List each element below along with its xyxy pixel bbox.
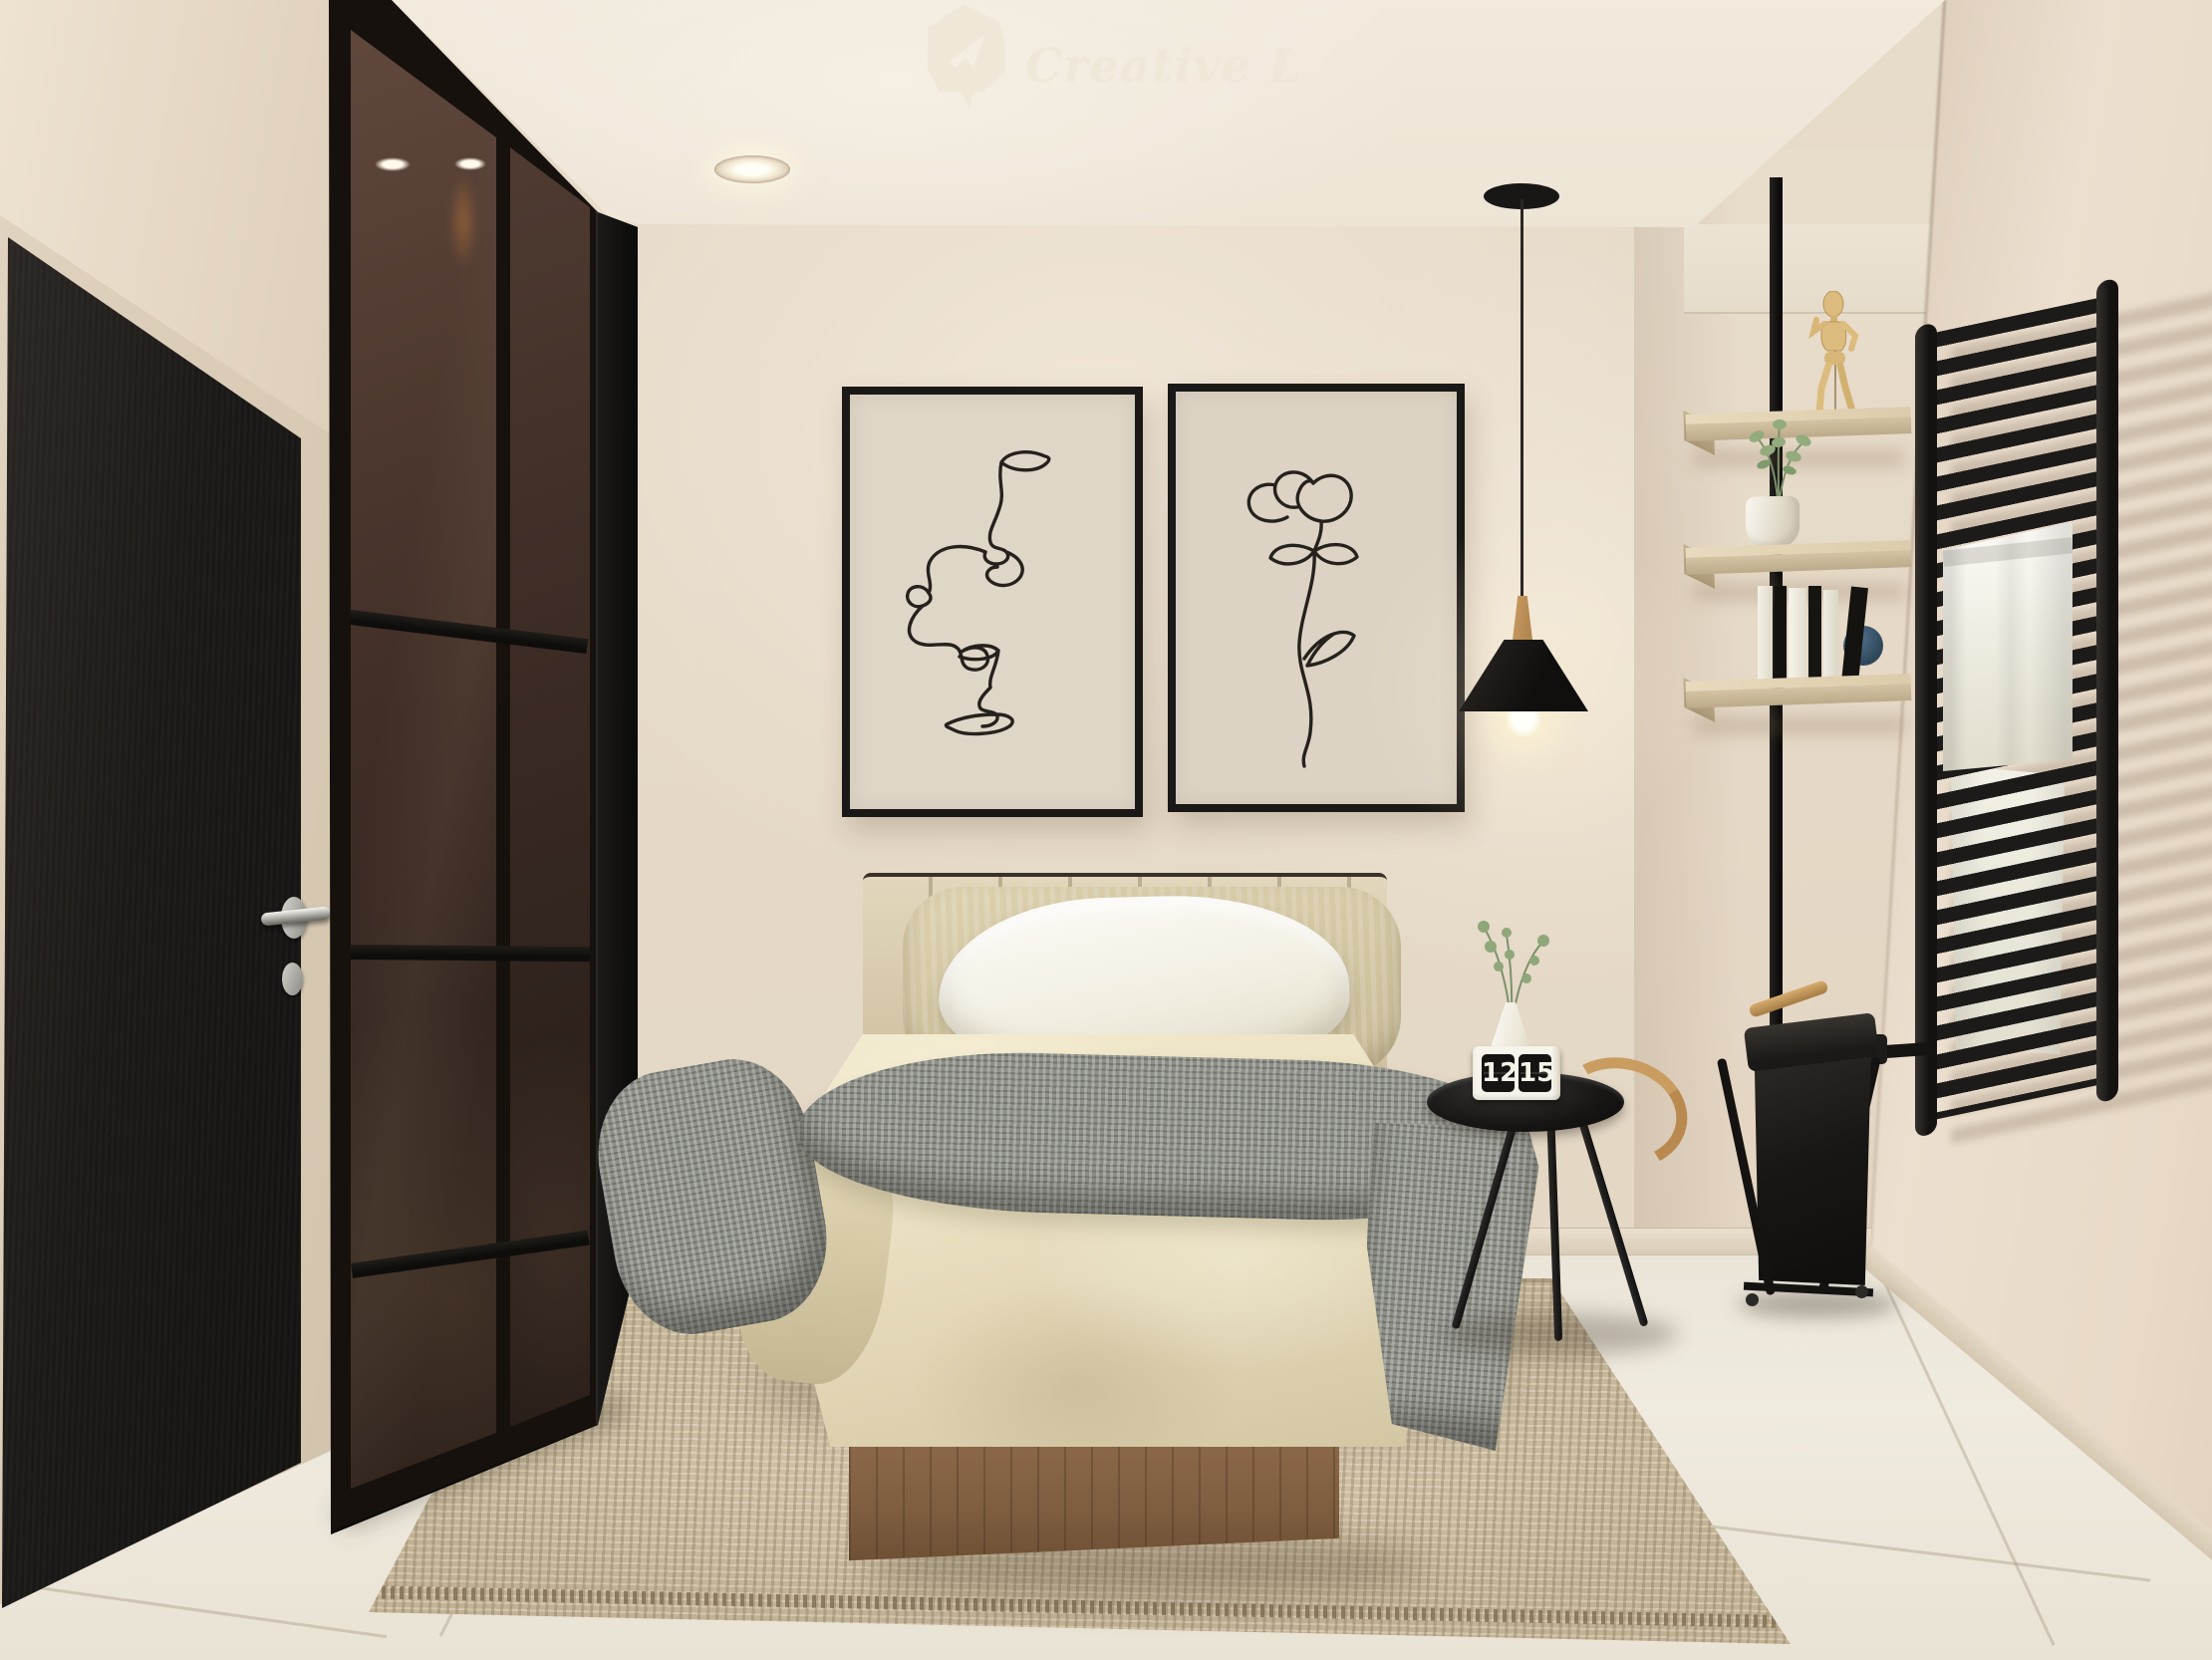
book-spine xyxy=(1789,588,1806,682)
flip-clock: 12 15 xyxy=(1473,1046,1560,1100)
spotlight-reflection xyxy=(454,157,486,170)
wooden-mannequin xyxy=(1792,291,1875,416)
potted-plant xyxy=(1730,409,1825,504)
hamper-shadow xyxy=(1738,1291,1897,1317)
radiator-tube xyxy=(1915,322,1937,1138)
glass-wardrobe xyxy=(329,0,642,1560)
faces-line-art xyxy=(850,395,1135,809)
door-lock-cylinder xyxy=(282,963,303,995)
plant-pot xyxy=(1746,496,1799,548)
book-spine xyxy=(1758,586,1773,682)
tile-grout-line xyxy=(1686,1522,2151,1581)
paper-plane-badge-icon xyxy=(928,4,1005,110)
book-spine xyxy=(1841,587,1868,684)
hamper-caster xyxy=(1855,1285,1868,1298)
warm-light-reflection xyxy=(448,171,478,271)
pendant-cord xyxy=(1521,199,1523,602)
wardrobe-glass-panel xyxy=(329,0,642,1560)
book-row xyxy=(1758,582,1867,682)
flip-clock-hours: 12 xyxy=(1482,1054,1515,1092)
towel xyxy=(1943,522,2073,771)
shelf-shadow xyxy=(1694,717,1905,733)
book-spine xyxy=(1823,590,1838,682)
recessed-spotlight xyxy=(714,155,790,183)
flip-clock-minutes: 15 xyxy=(1519,1054,1551,1092)
spotlight-reflection xyxy=(375,157,411,171)
watermark-brand-text: Creative Lab xyxy=(1025,39,1300,94)
watermark-logo: Creative Lab xyxy=(922,0,1300,124)
book-spine xyxy=(1808,586,1821,682)
book-spine xyxy=(1775,586,1787,682)
hamper-caster xyxy=(1746,1293,1759,1306)
bedroom-render: 12 15 Creative Lab xyxy=(0,0,2212,1660)
line-art-poster-faces xyxy=(842,387,1143,817)
wardrobe-mullion xyxy=(351,945,590,962)
radiator-tube xyxy=(2096,278,2118,1104)
